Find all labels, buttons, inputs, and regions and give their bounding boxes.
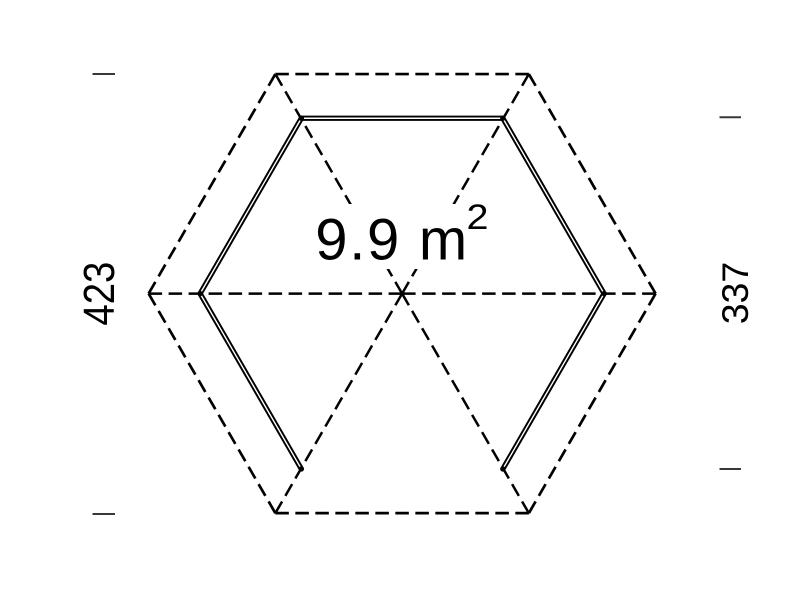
svg-text:337: 337 — [714, 262, 756, 325]
svg-text:423: 423 — [75, 262, 124, 326]
svg-text:9.9 m: 9.9 m — [315, 208, 467, 273]
svg-text:2: 2 — [467, 198, 489, 237]
